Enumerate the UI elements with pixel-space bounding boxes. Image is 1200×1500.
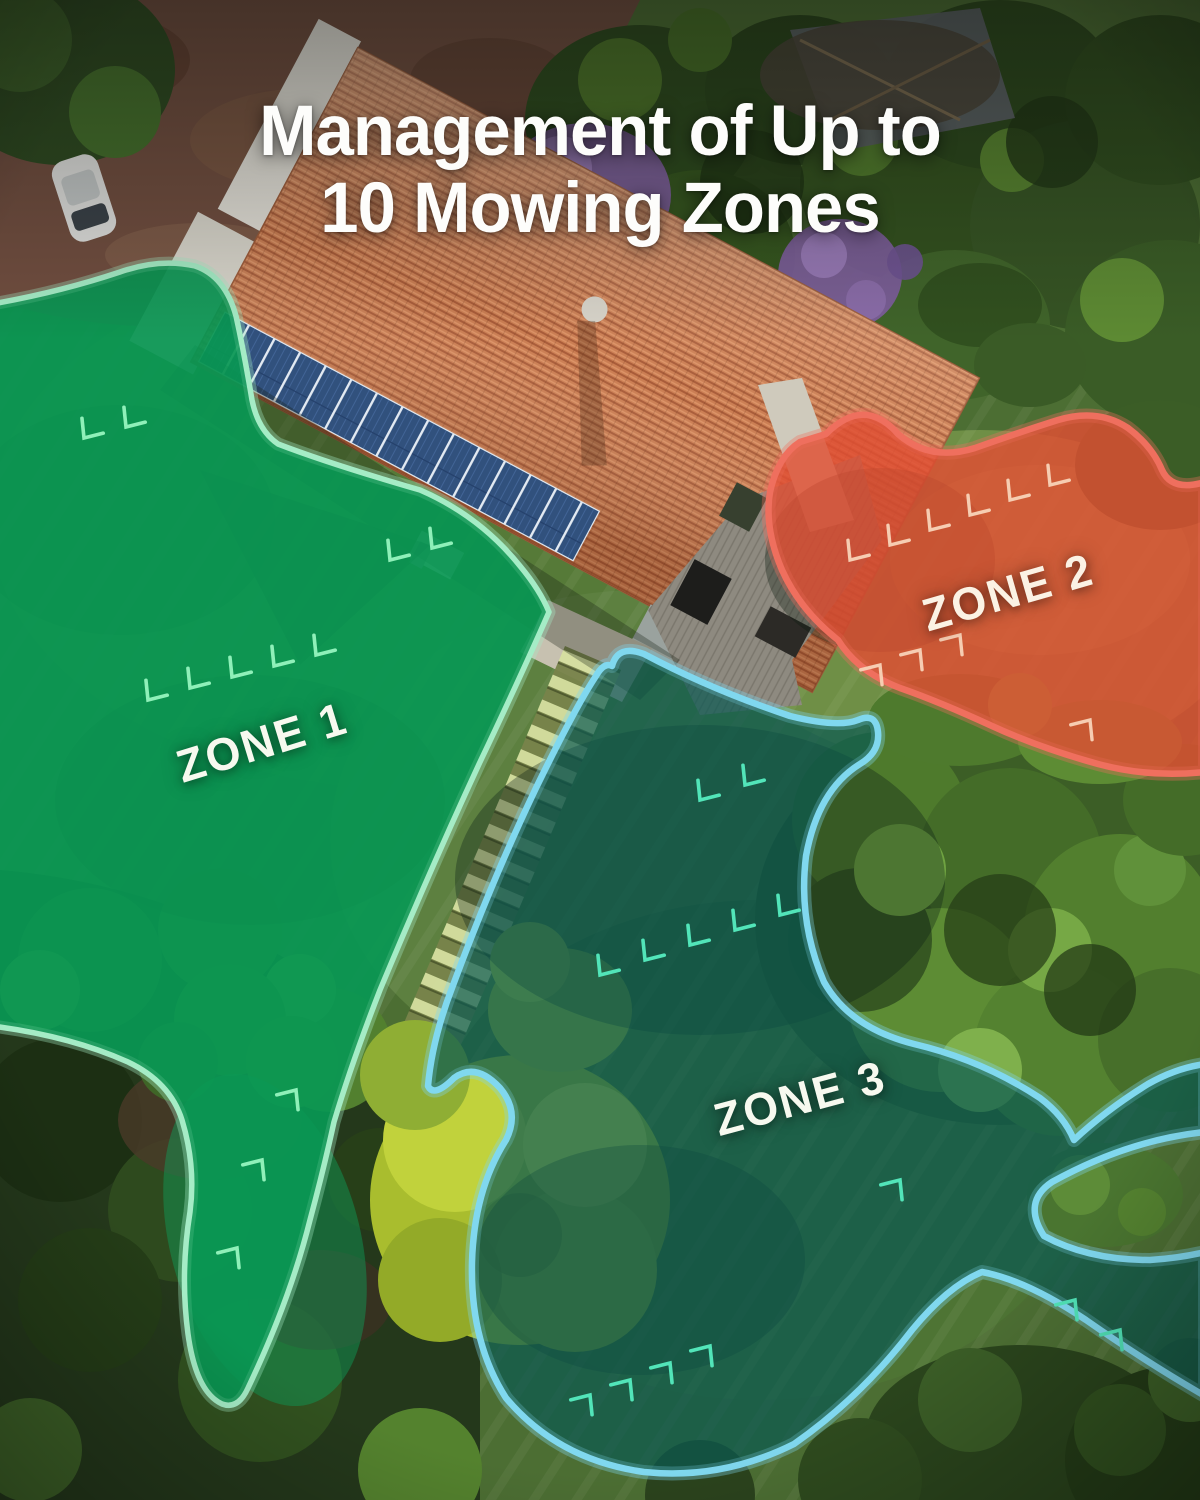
headline: Management of Up to 10 Mowing Zones bbox=[18, 94, 1182, 247]
mowing-zones-infographic: Management of Up to 10 Mowing Zones ZONE… bbox=[0, 0, 1200, 1500]
headline-line2: 10 Mowing Zones bbox=[18, 171, 1182, 248]
headline-line1: Management of Up to bbox=[18, 94, 1182, 171]
